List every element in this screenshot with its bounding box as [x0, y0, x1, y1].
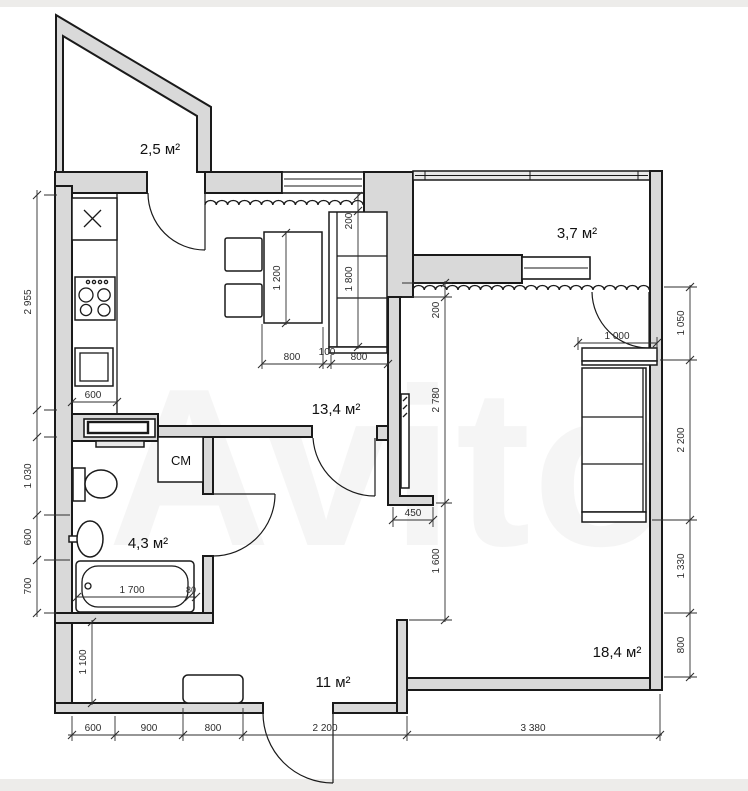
tv-panel: [401, 394, 409, 488]
bathroom-wall-lower: [203, 556, 213, 613]
bathroom-bottom-wall: [55, 613, 213, 623]
room-bottom-wall: [407, 678, 650, 690]
floorplan-svg: Avito: [0, 0, 748, 791]
fridge: [75, 348, 113, 386]
dim-tub-end: 80: [186, 585, 196, 595]
dim-right-1: 1 050: [676, 310, 687, 335]
dim-passage: 1 600: [431, 548, 442, 573]
dim-tub-zone: 700: [23, 577, 34, 594]
bathroom-wall-upper: [203, 437, 213, 494]
dim-toilet-zone: 1 030: [23, 463, 34, 488]
room-label-living-room: 18,4 м²: [593, 644, 642, 661]
chair: [225, 238, 262, 271]
corridor-bottom-wall-right: [333, 703, 397, 713]
dim-bottom-entry: 2 200: [312, 723, 337, 734]
washing-machine-label: СМ: [171, 453, 191, 468]
dim-left-wall: 2 955: [23, 289, 34, 314]
dim-right-2: 2 200: [676, 427, 687, 452]
kitchen-window: [282, 172, 364, 193]
dim-sofa-offset: 200: [344, 212, 355, 229]
dim-bottom-room: 3 380: [520, 723, 545, 734]
dim-kitchen-counter: 600: [85, 390, 102, 401]
dim-bottom-2: 900: [141, 723, 158, 734]
hall-top-wall: [158, 426, 312, 437]
dim-table-length: 1 200: [272, 265, 283, 290]
washbasin: [77, 521, 103, 557]
dim-wardrobe: 1 000: [604, 331, 629, 342]
room-label-kitchen-living: 13,4 м²: [312, 401, 361, 418]
dim-table-row-1: 800: [284, 352, 301, 363]
chair: [225, 284, 262, 317]
kitchen-top-wall-right: [205, 172, 282, 193]
toilet-tank: [73, 468, 85, 501]
dim-hall-depth: 1 100: [78, 649, 89, 674]
left-outer-wall: [55, 186, 72, 713]
balcony-sill-wall: [413, 255, 522, 283]
dim-right-4: 800: [676, 636, 687, 653]
dim-tub-length: 1 700: [119, 585, 144, 596]
dim-table-row-3: 800: [351, 352, 368, 363]
hall-cabinet: [183, 675, 243, 703]
dim-bottom-1: 600: [85, 723, 102, 734]
bed: [582, 368, 646, 512]
kitchen-fixtures: [72, 193, 117, 414]
wardrobe-edge: [582, 361, 657, 365]
page-bottom-strip: [0, 779, 748, 791]
dim-basin-zone: 600: [23, 528, 34, 545]
floor-plan-page: Avito: [0, 0, 748, 791]
room-label-balcony-right: 3,7 м²: [557, 225, 597, 242]
room-label-balcony-small: 2,5 м²: [140, 141, 180, 158]
dim-room-depth: 2 780: [431, 387, 442, 412]
page-top-strip: [0, 0, 748, 7]
sink-cabinet: [72, 198, 117, 240]
bed-footboard: [582, 512, 646, 522]
room-label-bathroom: 4,3 м²: [128, 535, 168, 552]
dim-right-3: 1 330: [676, 553, 687, 578]
wardrobe: [582, 348, 657, 361]
room-label-hallway: 11 м²: [315, 674, 350, 691]
dim-tv-wall: 450: [405, 508, 422, 519]
niche-ledge: [96, 441, 144, 447]
right-outer-wall: [650, 171, 662, 690]
dim-bottom-3: 800: [205, 723, 222, 734]
corridor-bottom-wall-left: [55, 703, 263, 713]
dim-sofa-length: 1 800: [344, 266, 355, 291]
dim-table-row-2: 100: [319, 347, 336, 358]
niche-shelf: [88, 422, 148, 433]
hall-furniture: [183, 675, 243, 703]
toilet: [85, 470, 117, 498]
stub-wall: [397, 620, 407, 713]
dim-sill-offset: 200: [431, 301, 442, 318]
